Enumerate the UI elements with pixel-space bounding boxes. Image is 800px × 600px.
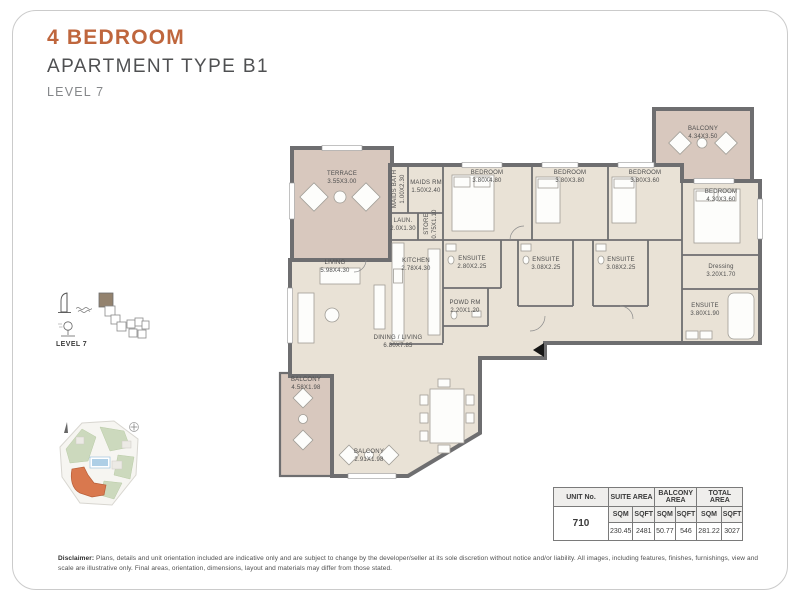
page-subtitle: APARTMENT TYPE B1	[47, 56, 269, 78]
suite-sqm-header: SQM	[609, 507, 633, 523]
park-tree-icon	[58, 320, 76, 338]
table-unit-row: 710 SQM SQFT SQM SQFT SQM SQFT	[554, 507, 743, 523]
balcony-left-area	[280, 373, 332, 476]
area-table: UNIT No. SUITE AREA BALCONY AREA TOTAL A…	[553, 487, 743, 541]
balcony-sqft-value: 546	[675, 523, 697, 541]
col-total-area: TOTAL AREA	[697, 488, 743, 507]
page-level: LEVEL 7	[47, 85, 269, 99]
table-header-row: UNIT No. SUITE AREA BALCONY AREA TOTAL A…	[554, 488, 743, 507]
unit-number: 710	[554, 507, 609, 541]
page-title: 4 BEDROOM	[47, 26, 269, 50]
floor-plan: TERRACE 3.55X3.00 BALCONY 4.34X3.50 MAID…	[270, 103, 770, 495]
suite-sqm-value: 230.45	[609, 523, 633, 541]
north-compass-icon	[130, 423, 139, 432]
balcony-sqft-header: SQFT	[675, 507, 697, 523]
balcony-sqm-header: SQM	[655, 507, 676, 523]
title-block: 4 BEDROOM APARTMENT TYPE B1 LEVEL 7	[47, 26, 269, 99]
total-sqft-value: 3027	[721, 523, 743, 541]
key-plan	[84, 291, 150, 345]
keyplan-level-label: LEVEL 7	[56, 341, 87, 348]
floor-plan-drawing	[270, 103, 770, 495]
col-suite-area: SUITE AREA	[609, 488, 655, 507]
disclaimer-text: Plans, details and unit orientation incl…	[58, 555, 758, 573]
total-sqm-value: 281.22	[697, 523, 721, 541]
disclaimer-label: Disclaimer:	[58, 555, 94, 562]
burj-al-arab-icon	[57, 292, 73, 314]
col-balcony-area: BALCONY AREA	[655, 488, 697, 507]
balcony-sqm-value: 50.77	[655, 523, 676, 541]
col-unit-no: UNIT No.	[554, 488, 609, 507]
map-burj-marker	[64, 422, 68, 433]
total-sqft-header: SQFT	[721, 507, 743, 523]
pool	[92, 459, 108, 466]
disclaimer: Disclaimer: Plans, details and unit orie…	[58, 554, 760, 575]
site-map	[52, 417, 144, 513]
suite-sqft-header: SQFT	[633, 507, 655, 523]
suite-sqft-value: 2481	[633, 523, 655, 541]
total-sqm-header: SQM	[697, 507, 721, 523]
